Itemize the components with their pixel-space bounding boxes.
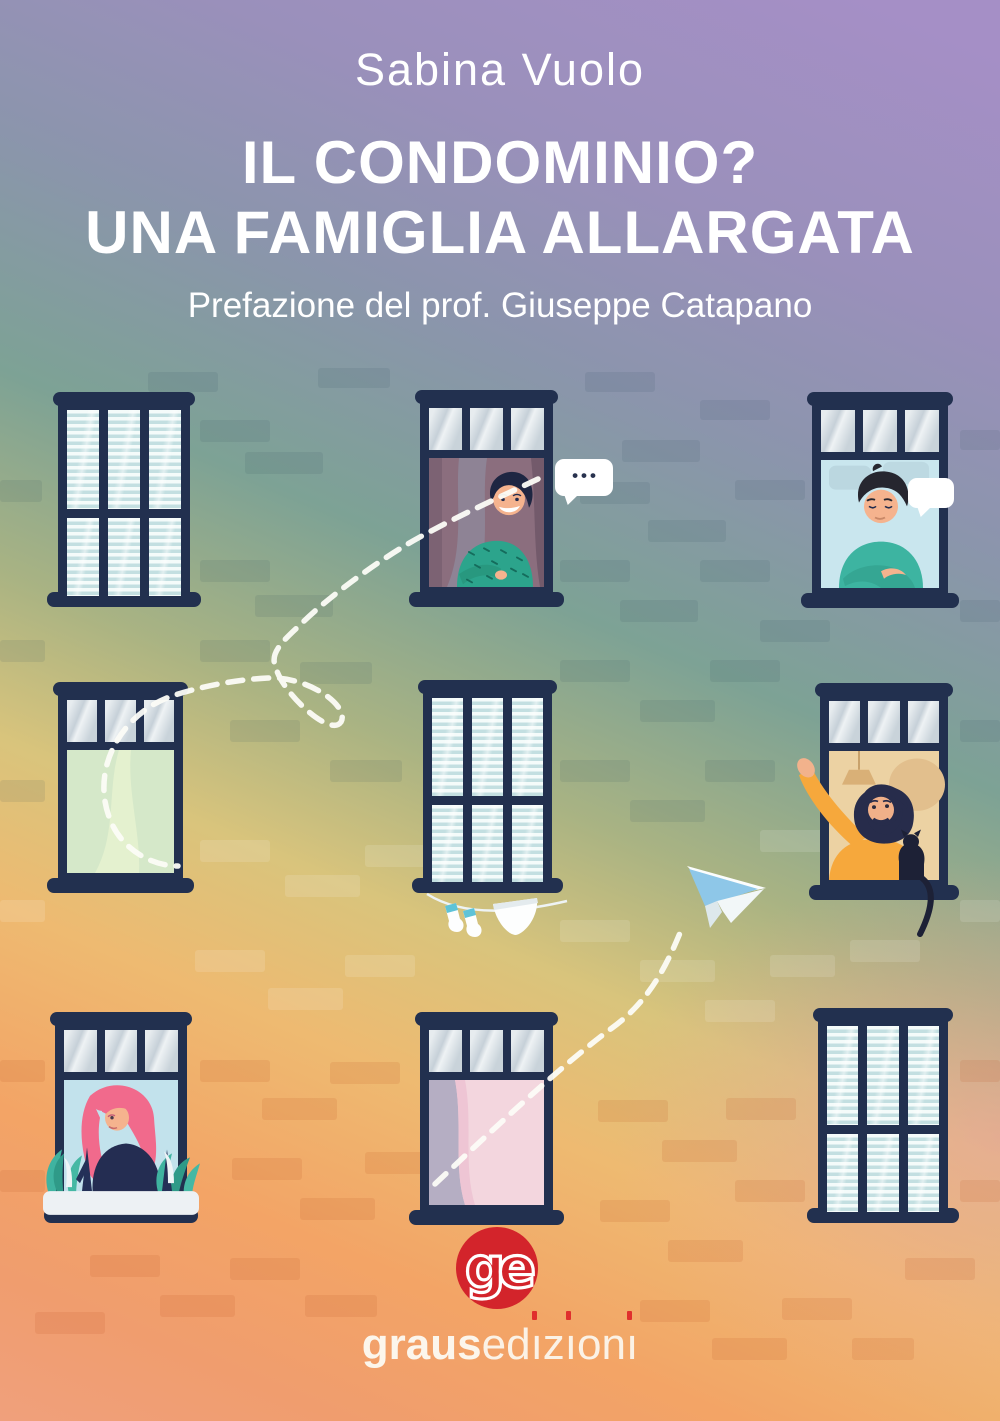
paper-plane-icon [687,866,766,928]
dashed-string-path-1 [104,479,538,866]
book-cover: Sabina Vuolo IL CONDOMINIO? UNA FAMIGLIA… [0,0,1000,1421]
speech-bubble-dots: ••• [555,459,613,496]
dashed-string-path-2 [435,928,682,1184]
typing-dots: ••• [569,466,599,486]
speech-bubble-empty [908,478,954,508]
connection-paths [0,0,1000,1421]
